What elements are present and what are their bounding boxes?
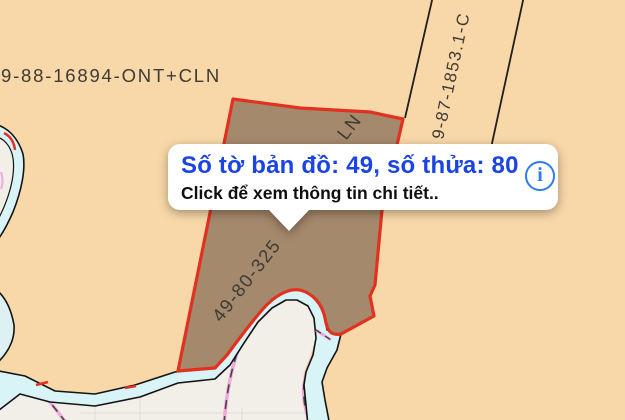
parcel-tooltip[interactable]: Số tờ bản đồ: 49, số thửa: 80 Click để x… <box>168 144 558 210</box>
parcel-tooltip-body[interactable]: Số tờ bản đồ: 49, số thửa: 80 Click để x… <box>168 144 558 210</box>
tooltip-subtitle: Click để xem thông tin chi tiết.. <box>181 181 514 205</box>
tooltip-tail <box>268 209 310 231</box>
info-icon[interactable]: i <box>525 161 555 191</box>
neighbor-parcel-label: 9-88-16894-ONT+CLN <box>1 65 221 86</box>
map-canvas[interactable]: 9-87-1853.1-C 49-80-325 LN 9-88-16894-ON… <box>0 0 625 420</box>
map-viewer-window: 9-87-1853.1-C 49-80-325 LN 9-88-16894-ON… <box>0 0 625 420</box>
tooltip-title: Số tờ bản đồ: 49, số thửa: 80 <box>181 151 514 181</box>
